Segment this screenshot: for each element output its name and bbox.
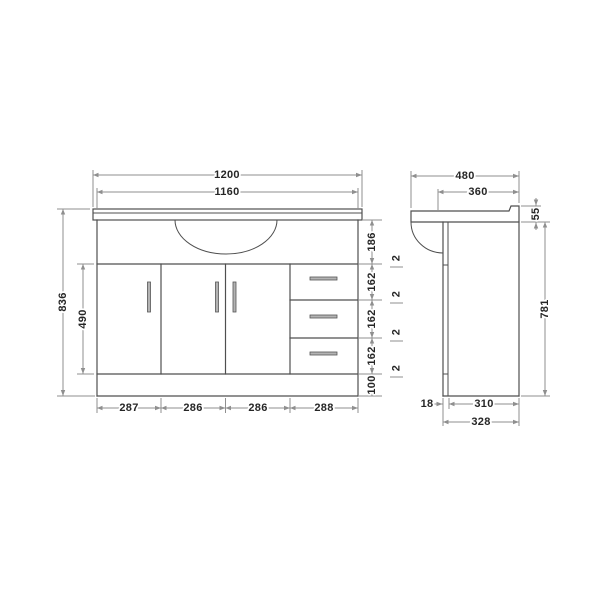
dim-label-door-thickness: 18 bbox=[421, 398, 434, 410]
front-cabinet-outline bbox=[93, 209, 362, 396]
front-dimensions: 1200 1160 836 490 186 2 162 2 162 2 162 … bbox=[57, 169, 403, 414]
dim-label-gap-2: 2 bbox=[391, 291, 403, 297]
drawer-3-handle bbox=[310, 352, 337, 355]
front-view: 1200 1160 836 490 186 2 162 2 162 2 162 … bbox=[57, 169, 403, 414]
drawing-canvas: 1200 1160 836 490 186 2 162 2 162 2 162 … bbox=[0, 0, 602, 602]
side-dimensions: 480 360 55 781 18 310 328 bbox=[411, 170, 551, 428]
dim-label-286b: 286 bbox=[248, 402, 267, 414]
dim-label-depth-total: 480 bbox=[455, 170, 474, 182]
basin-side-arc bbox=[411, 222, 443, 253]
dim-label-162b: 162 bbox=[366, 309, 378, 328]
door-2-handle bbox=[216, 282, 219, 312]
dim-label-cabinet-height: 781 bbox=[539, 299, 551, 318]
dim-label-162a: 162 bbox=[366, 272, 378, 291]
drawer-2-handle bbox=[310, 315, 337, 318]
drawer-1-handle bbox=[310, 277, 337, 280]
front-handles bbox=[148, 277, 338, 355]
dim-label-height-doors: 490 bbox=[77, 309, 89, 328]
side-cabinet-outline bbox=[411, 206, 519, 396]
dim-label-depth-base: 328 bbox=[471, 416, 490, 428]
dim-label-186: 186 bbox=[366, 232, 378, 251]
dim-label-width-total: 1200 bbox=[214, 169, 240, 181]
door-3-handle bbox=[233, 282, 236, 312]
dim-label-gap-3: 2 bbox=[391, 329, 403, 335]
dim-label-287: 287 bbox=[119, 402, 138, 414]
door-1-handle bbox=[148, 282, 151, 312]
worktop-front bbox=[93, 209, 362, 220]
side-view: 480 360 55 781 18 310 328 bbox=[411, 170, 551, 428]
dim-label-gap-1: 2 bbox=[391, 255, 403, 261]
dim-label-100: 100 bbox=[366, 375, 378, 394]
dim-label-upstand: 55 bbox=[530, 208, 542, 221]
vanity-technical-drawing: 1200 1160 836 490 186 2 162 2 162 2 162 … bbox=[0, 0, 602, 602]
dim-label-width-top: 1160 bbox=[214, 186, 239, 198]
dim-label-286a: 286 bbox=[183, 402, 202, 414]
dim-label-depth-top: 360 bbox=[468, 186, 487, 198]
basin-bowl-arc bbox=[175, 220, 277, 254]
dim-label-gap-4: 2 bbox=[391, 365, 403, 371]
dim-label-height-total: 836 bbox=[57, 292, 69, 311]
dim-label-depth-body: 310 bbox=[474, 398, 493, 410]
dim-label-288: 288 bbox=[314, 402, 333, 414]
worktop-side-profile bbox=[411, 206, 519, 222]
dim-label-162c: 162 bbox=[366, 346, 378, 365]
